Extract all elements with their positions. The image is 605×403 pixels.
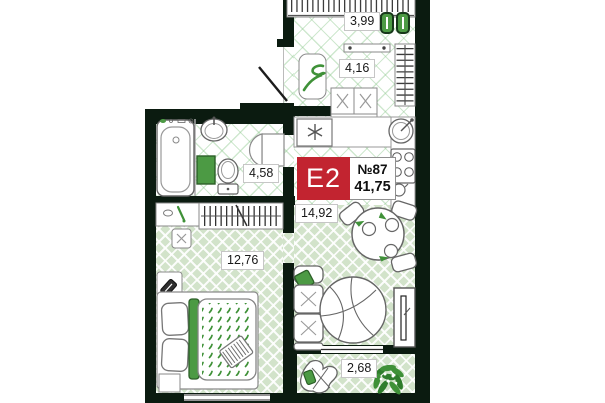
tv-console-icon bbox=[394, 288, 415, 347]
unit-type-label: E2 bbox=[297, 157, 350, 200]
nightstand-icon bbox=[159, 374, 180, 392]
area-label-kitchen-living: 14,92 bbox=[295, 204, 338, 223]
bedroom-window bbox=[184, 394, 270, 401]
plate-icon bbox=[363, 223, 376, 236]
balcony-chair-icon bbox=[301, 361, 337, 393]
toilet-icon bbox=[218, 159, 238, 194]
furniture-layer bbox=[0, 0, 605, 403]
washbasin-icon bbox=[201, 117, 227, 142]
pouf-icon bbox=[172, 229, 191, 248]
bathroom-door-icon bbox=[250, 134, 284, 166]
unit-badge[interactable]: E2 №87 41,75 bbox=[297, 157, 396, 200]
dresser-icon bbox=[156, 203, 199, 226]
balcony-window bbox=[321, 346, 383, 353]
hanger-rail-icon bbox=[395, 44, 415, 106]
storage-box-icon bbox=[331, 88, 377, 118]
kitchen-sink-icon bbox=[389, 118, 414, 143]
bathtub-icon bbox=[157, 119, 194, 196]
bench-icon bbox=[299, 54, 326, 99]
area-label-hallway: 4,16 bbox=[339, 59, 375, 78]
console-shelf-icon bbox=[344, 44, 390, 52]
area-label-bathroom: 4,58 bbox=[243, 164, 279, 183]
unit-info: №87 41,75 bbox=[350, 157, 396, 200]
sofa-icon bbox=[294, 266, 323, 350]
lounge-chair-icon bbox=[320, 277, 386, 343]
bath-mat-icon bbox=[197, 156, 215, 184]
unit-number: №87 bbox=[357, 161, 387, 178]
dining-set-icon bbox=[338, 200, 418, 273]
unit-total-area: 41,75 bbox=[354, 178, 390, 196]
floor-plan: 3,99 4,16 4,58 14,92 12,76 2,68 E2 №87 4… bbox=[0, 0, 605, 403]
bedroom-hanger-rail-icon bbox=[199, 203, 283, 229]
area-label-wardrobe: 3,99 bbox=[344, 12, 380, 31]
plate-icon bbox=[385, 245, 398, 258]
area-label-bedroom: 12,76 bbox=[221, 251, 264, 270]
entrance-door-icon bbox=[259, 47, 287, 103]
area-label-balcony: 2,68 bbox=[341, 359, 377, 378]
washing-machine-icon bbox=[297, 119, 332, 146]
plate-icon bbox=[386, 219, 399, 232]
